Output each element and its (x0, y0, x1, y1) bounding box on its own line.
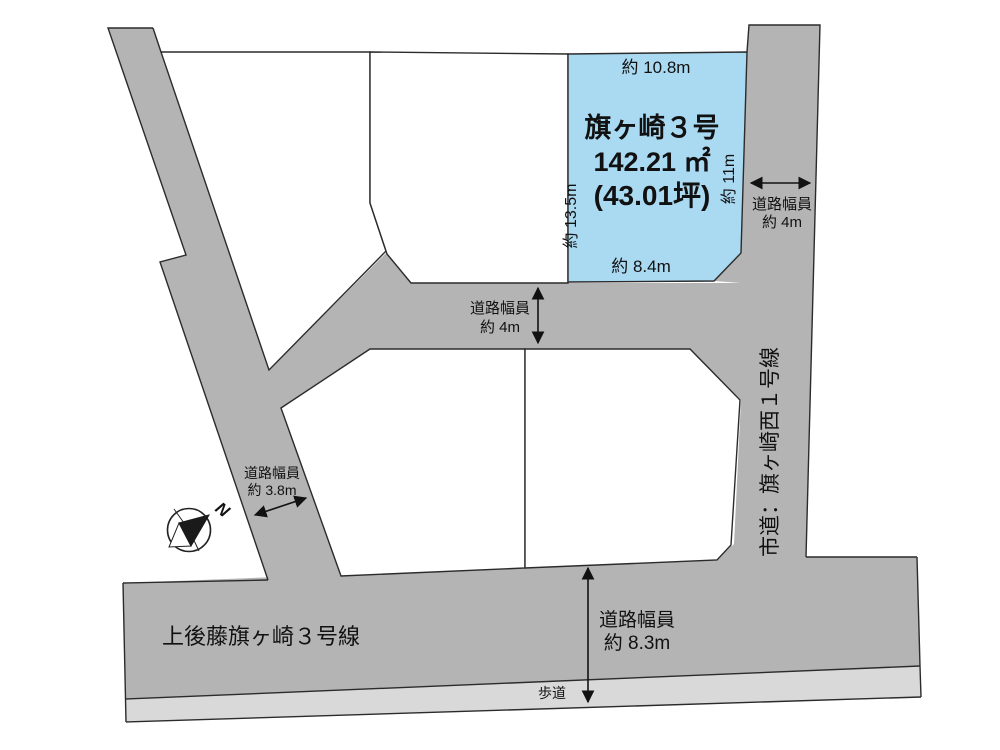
bottom-road-width-caption: 道路幅員 (599, 609, 675, 631)
plot-map-canvas: 約 10.8m 旗ヶ崎３号 142.21 ㎡ (43.01坪) 約 13.5m … (0, 0, 1000, 750)
parcel-top-middle (370, 52, 568, 283)
bottom-road-name: 上後藤旗ヶ崎３号線 (162, 624, 360, 649)
parcel-dim-bottom: 約 8.4m (611, 257, 671, 276)
parcel-area: 142.21 ㎡ (593, 146, 710, 177)
compass: N (168, 498, 234, 551)
middle-road-width-value: 約 4m (480, 319, 520, 336)
middle-road-width-caption: 道路幅員 (470, 300, 530, 317)
parcel-area-tsubo: (43.01坪) (594, 180, 711, 211)
parcel-name: 旗ヶ崎３号 (585, 112, 720, 143)
left-road-width-value: 約 3.8m (247, 482, 296, 498)
parcel-dim-left: 約 13.5m (562, 184, 580, 249)
parcel-dim-right: 約 11m (720, 154, 738, 204)
bottom-road-width-value: 約 8.3m (604, 632, 671, 654)
sidewalk-label: 歩道 (538, 685, 566, 701)
compass-north-label: N (212, 498, 234, 521)
right-road-width-caption: 道路幅員 (752, 196, 812, 213)
parcel-dim-top: 約 10.8m (622, 58, 691, 77)
right-road-name: 市道：旗ヶ崎西１号線 (759, 347, 782, 557)
parcel-bottom-right (525, 349, 740, 568)
right-road-width-value: 約 4m (762, 214, 802, 231)
plot-map: 約 10.8m 旗ヶ崎３号 142.21 ㎡ (43.01坪) 約 13.5m … (0, 0, 1000, 750)
left-road-width-caption: 道路幅員 (244, 465, 300, 481)
